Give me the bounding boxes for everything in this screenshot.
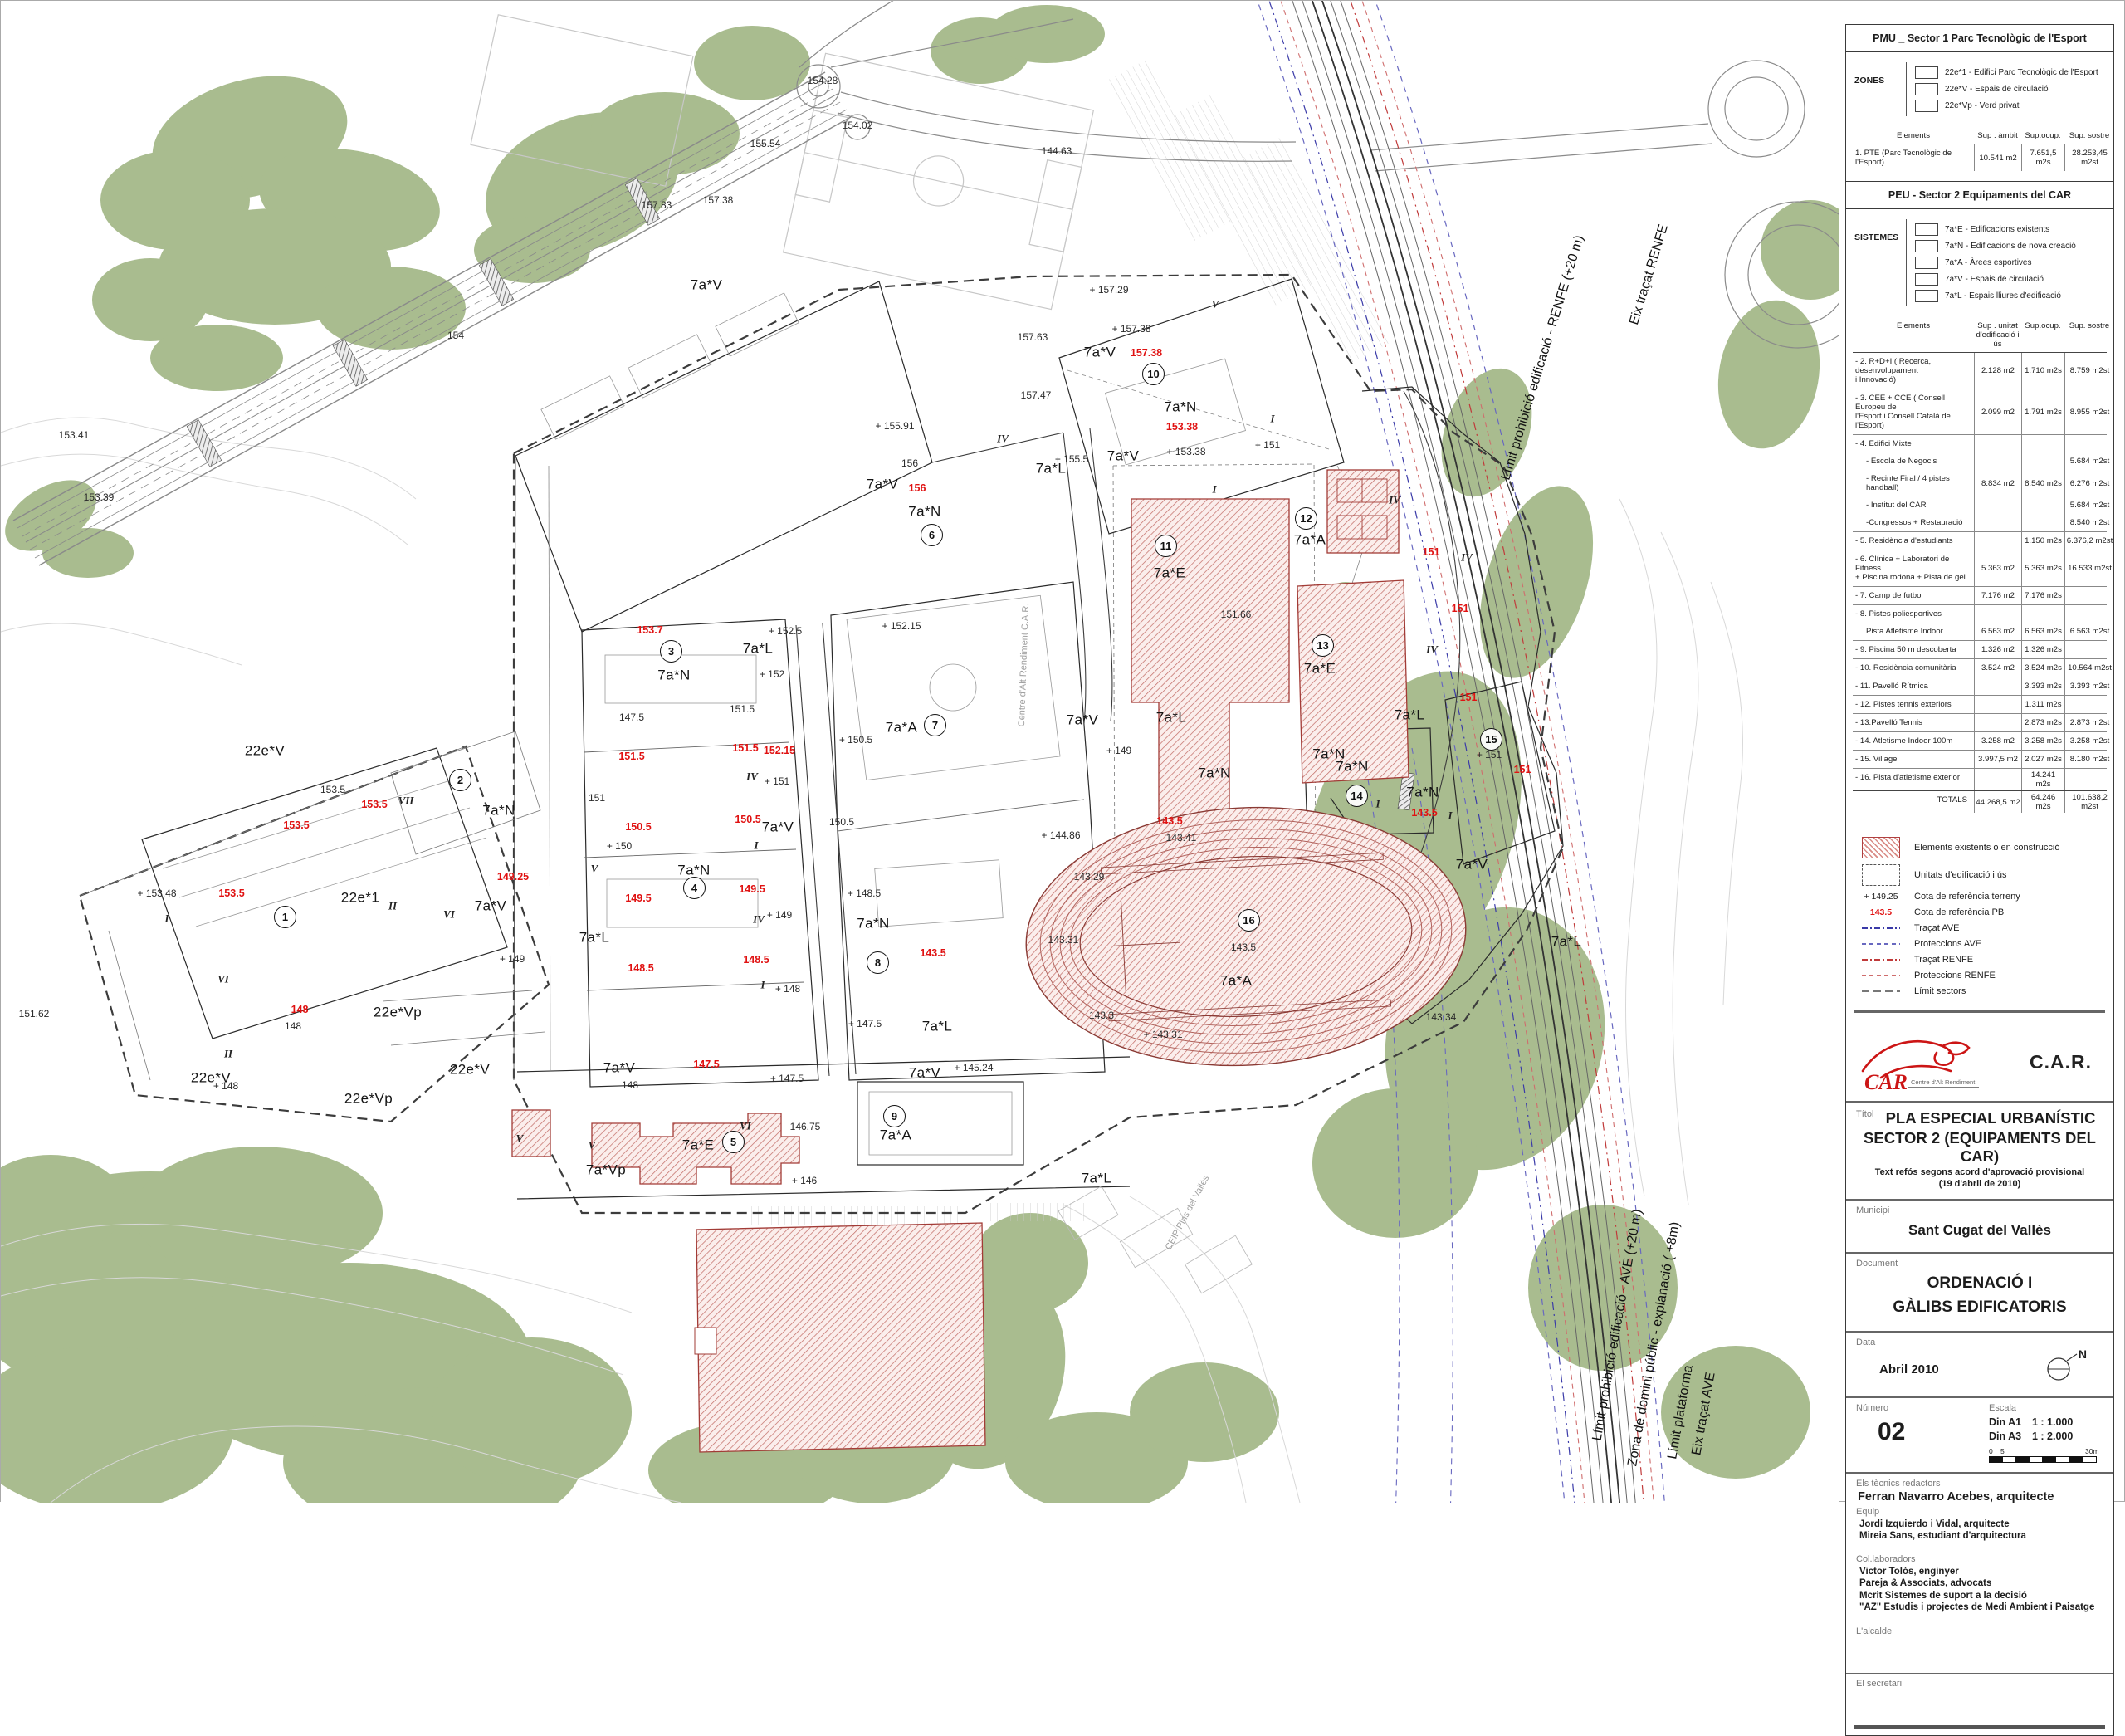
table-row: - 9. Piscina 50 m descoberta1.326 m21.32…: [1853, 640, 2107, 658]
legend-label: Elements existents o en construcció: [1914, 843, 2059, 853]
cota-symbol: 143.5: [1870, 907, 1892, 917]
sistemes-row: 7a*A - Àrees esportives: [1915, 257, 2107, 269]
cell-sup-ocup: 3.393 m2s: [2021, 677, 2064, 695]
map-drawing: [1, 1, 1839, 1503]
titol-label: Títol: [1856, 1109, 1873, 1119]
cell-sup-sostre: [2064, 769, 2114, 790]
legend-label: Cota de referència terreny: [1914, 892, 2020, 902]
cell-sup-ocup: 1.710 m2s: [2021, 353, 2064, 389]
cell-label: - 13.Pavelló Tennis: [1853, 714, 1974, 731]
cell-sup-sostre: 5.684 m2st: [2064, 452, 2114, 470]
cell-sup-unitat: 2.128 m2: [1974, 353, 2021, 389]
zone-text: 7a*N - Edificacions de nova creació: [1945, 242, 2076, 251]
equip-member: Mireia Sans, estudiant d'arquitectura: [1859, 1531, 2103, 1541]
zones-row: 22e*V - Espais de circulació: [1915, 83, 2107, 95]
escala-format: Din A1: [1989, 1416, 2032, 1428]
cell-sup-unitat: 3.258 m2: [1974, 732, 2021, 750]
equip-list: Jordi Izquierdo i Vidal, arquitecteMirei…: [1856, 1519, 2103, 1542]
legend-label: Traçat AVE: [1914, 923, 1959, 933]
cell-label: - 11. Pavelló Rítmica: [1853, 677, 1974, 695]
legend-label: Traçat RENFE: [1914, 955, 1973, 965]
table-header: ElementsSup . àmbitSup.ocup.Sup. sostre: [1853, 128, 2107, 144]
cell-label: - 12. Pistes tennis exteriors: [1853, 696, 1974, 713]
zone-swatch: [1915, 100, 1938, 112]
zone-text: 22e*Vp - Verd privat: [1945, 101, 2020, 110]
cell-sup-sostre: [2064, 641, 2114, 658]
table-row: - 7. Camp de futbol7.176 m27.176 m2s: [1853, 586, 2107, 604]
legend-symbol: [1858, 927, 1904, 929]
document-line2: GÀLIBS EDIFICATORIS: [1856, 1298, 2103, 1317]
cell-sup-unitat: 3.524 m2: [1974, 659, 2021, 677]
table-header-cell: Sup. sostre: [2064, 318, 2114, 352]
zone-text: 22e*V - Espais de circulació: [1945, 85, 2049, 94]
cell-sup-ocup: 7.651,5 m2s: [2021, 144, 2064, 171]
collaborators-list: Victor Tolós, enginyerPareja & Associats…: [1856, 1567, 2103, 1613]
table-row: - 8. Pistes poliesportives: [1853, 604, 2107, 623]
cell-sup-unitat: [1974, 714, 2021, 731]
cell-label: - 2. R+D+I ( Recerca, desenvolupament i …: [1853, 353, 1974, 389]
table-row: - 14. Atletisme Indoor 100m3.258 m23.258…: [1853, 731, 2107, 750]
cell-sup-sostre: 10.564 m2st: [2064, 659, 2114, 677]
totals-label: TOTALS: [1853, 791, 1974, 813]
collaborator: Mcrit Sistemes de suport a la decisió: [1859, 1591, 2103, 1601]
legend-symbol: [1858, 837, 1904, 858]
legend-symbol: 143.5: [1858, 907, 1904, 917]
totals-sup-ocup: 64.246 m2s: [2021, 791, 2064, 813]
cell-sup-ocup: 3.524 m2s: [2021, 659, 2064, 677]
legend-item: 143.5Cota de referència PB: [1858, 907, 2105, 917]
hatch-swatch: [1862, 837, 1900, 858]
cell-label: -Congressos + Restauració: [1853, 514, 1974, 531]
cell-sup-sostre: [2064, 605, 2114, 623]
municipi-section: Municipi Sant Cugat del Vallès: [1846, 1199, 2113, 1252]
cell-sup-unitat: 8.834 m2: [1974, 470, 2021, 496]
peu-sector2-box: PEU - Sector 2 Equipaments del CAR SISTE…: [1845, 182, 2114, 1736]
cell-sup-sostre: 6.376,2 m2st: [2064, 532, 2114, 550]
cell-label: - 10. Residència comunitària: [1853, 659, 1974, 677]
pmu-elements-table: ElementsSup . àmbitSup.ocup.Sup. sostre1…: [1853, 128, 2107, 171]
legend-panel: PMU _ Sector 1 Parc Tecnològic de l'Espo…: [1845, 24, 2114, 1736]
cell-sup-unitat: [1974, 769, 2021, 790]
legend-item: Elements existents o en construcció: [1858, 837, 2105, 858]
legend-item: Límit sectors: [1858, 986, 2105, 996]
cell-sup-ocup: [2021, 496, 2064, 514]
line-swatch: [1862, 975, 1900, 976]
building-12: [1327, 470, 1399, 553]
cell-sup-ocup: 14.241 m2s: [2021, 769, 2064, 790]
cell-sup-sostre: 8.540 m2st: [2064, 514, 2114, 531]
cell-label: - 14. Atletisme Indoor 100m: [1853, 732, 1974, 750]
document-label: Document: [1856, 1259, 2103, 1269]
cell-sup-ocup: 1.791 m2s: [2021, 389, 2064, 434]
numero-value: 02: [1878, 1418, 1905, 1446]
cell-sup-unitat: [1974, 496, 2021, 514]
municipi-value: Sant Cugat del Vallès: [1856, 1222, 2103, 1239]
cell-sup-sostre: [2064, 696, 2114, 713]
svg-text:CAR: CAR: [1864, 1070, 1908, 1094]
alcalde-label: L'alcalde: [1856, 1626, 2103, 1636]
cell-sup-ocup: [2021, 514, 2064, 531]
totals-sup-sostre: 101.638,2 m2st: [2064, 791, 2114, 813]
cell-sup-unitat: [1974, 605, 2021, 623]
table-row: - 5. Residència d'estudiants1.150 m2s6.3…: [1853, 531, 2107, 550]
titol-section: Títol PLA ESPECIAL URBANÍSTIC SECTOR 2 (…: [1846, 1101, 2113, 1199]
cell-label: - 16. Pista d'atletisme exterior: [1853, 769, 1974, 790]
table-row: - Recinte Firal / 4 pistes handball)8.83…: [1853, 470, 2107, 496]
table-row: 1. PTE (Parc Tecnològic de l'Esport)10.5…: [1853, 144, 2107, 171]
escala-row: Din A31 : 2.000: [1989, 1430, 2098, 1442]
scale-bar-label: 5: [2000, 1447, 2005, 1455]
table-header-cell: Sup . àmbit: [1974, 128, 2021, 144]
numero-escala-section: Número 02 Escala Din A11 : 1.000Din A31 …: [1846, 1396, 2113, 1472]
data-label: Data: [1856, 1337, 2103, 1347]
cell-label: - 9. Piscina 50 m descoberta: [1853, 641, 1974, 658]
car-sub-inline: Centre d'Alt Rendiment: [1911, 1078, 1976, 1086]
cell-sup-unitat: 2.099 m2: [1974, 389, 2021, 434]
collaborator: Victor Tolós, enginyer: [1859, 1567, 2103, 1577]
cell-sup-ocup: 2.027 m2s: [2021, 751, 2064, 768]
zone-swatch: [1915, 223, 1938, 236]
zone-swatch: [1915, 290, 1938, 302]
cell-sup-sostre: 6.276 m2st: [2064, 470, 2114, 496]
cell-label: - Institut del CAR: [1853, 496, 1974, 514]
cell-label: - Escola de Negocis: [1853, 452, 1974, 470]
zone-text: 7a*V - Espais de circulació: [1945, 275, 2044, 284]
cell-sup-ocup: 5.363 m2s: [2021, 550, 2064, 586]
zones-row: 22e*Vp - Verd privat: [1915, 100, 2107, 112]
pmu-title: PMU _ Sector 1 Parc Tecnològic de l'Espo…: [1846, 25, 2113, 52]
cell-sup-unitat: [1974, 514, 2021, 531]
legend-symbol: [1858, 943, 1904, 945]
map-canvas: 22e*V22e*122e*Vp22e*V22e*Vp22e*V7a*Vp7a*…: [1, 1, 1839, 1503]
north-arrow: N: [2040, 1347, 2087, 1388]
sistemes-row: 7a*N - Edificacions de nova creació: [1915, 240, 2107, 252]
symbol-legend: Elements existents o en construccióUnita…: [1846, 823, 2113, 1007]
data-section: Data Abril 2010 N: [1846, 1331, 2113, 1396]
building-indoor-hall: [696, 1223, 985, 1452]
cell-sup-sostre: 5.684 m2st: [2064, 496, 2114, 514]
cell-sup-unitat: 1.326 m2: [1974, 641, 2021, 658]
zone-text: 7a*L - Espais lliures d'edificació: [1945, 291, 2061, 301]
table-row: - 3. CEE + CCE ( Consell Europeu de l'Es…: [1853, 389, 2107, 434]
sistemes-row: 7a*E - Edificacions existents: [1915, 223, 2107, 236]
cell-sup-ocup: 6.563 m2s: [2021, 623, 2064, 640]
legend-symbol: [1858, 864, 1904, 886]
pmu-sector1-box: PMU _ Sector 1 Parc Tecnològic de l'Espo…: [1845, 24, 2114, 182]
cell-label: - 4. Edifici Mixte: [1853, 435, 1974, 452]
table-row: - 4. Edifici Mixte: [1853, 434, 2107, 452]
legend-label: Proteccions AVE: [1914, 939, 1981, 949]
table-header-cell: Sup.ocup.: [2021, 128, 2064, 144]
cell-sup-sostre: 3.393 m2st: [2064, 677, 2114, 695]
cell-sup-ocup: 3.258 m2s: [2021, 732, 2064, 750]
escala-label: Escala: [1989, 1403, 2098, 1413]
escala-format: Din A3: [1989, 1430, 2032, 1442]
titol-line3: Text refós segons acord d'aprovació prov…: [1856, 1167, 2103, 1177]
table-row: - 11. Pavelló Rítmica3.393 m2s3.393 m2st: [1853, 677, 2107, 695]
legend-item: + 149.25Cota de referència terreny: [1858, 892, 2105, 902]
cell-sup-ocup: 2.873 m2s: [2021, 714, 2064, 731]
legend-item: Traçat AVE: [1858, 923, 2105, 933]
escala-ratio: 1 : 2.000: [2032, 1430, 2073, 1442]
car-logo: CAR Centre d'Alt Rendiment: [1856, 1029, 1981, 1094]
cell-sup-unitat: [1974, 532, 2021, 550]
legend-label: Cota de referència PB: [1914, 907, 2004, 917]
legend-item: Proteccions RENFE: [1858, 971, 2105, 980]
cell-sup-ocup: 7.176 m2s: [2021, 587, 2064, 604]
legend-symbol: [1858, 990, 1904, 993]
cell-sup-sostre: 8.759 m2st: [2064, 353, 2114, 389]
sistemes-row: 7a*L - Espais lliures d'edificació: [1915, 290, 2107, 302]
escala-row: Din A11 : 1.000: [1989, 1416, 2098, 1428]
north-letter: N: [2079, 1347, 2087, 1361]
divider: [1854, 1010, 2105, 1013]
cell-sup-unitat: [1974, 435, 2021, 452]
zone-swatch: [1915, 66, 1938, 79]
scale-bar: 0530m: [1989, 1449, 2098, 1464]
alcalde-section: L'alcalde: [1846, 1621, 2113, 1673]
zones-row: 22e*1 - Edifici Parc Tecnològic de l'Esp…: [1915, 66, 2107, 79]
cell-sup-unitat: 5.363 m2: [1974, 550, 2021, 586]
cell-label: - 3. CEE + CCE ( Consell Europeu de l'Es…: [1853, 389, 1974, 434]
cell-sup-sostre: 16.533 m2st: [2064, 550, 2114, 586]
cell-label: - 6. Clínica + Laboratori de Fitness + P…: [1853, 550, 1974, 586]
line-swatch: [1862, 927, 1900, 929]
cell-sup-sostre: 6.563 m2st: [2064, 623, 2114, 640]
titol-line2: SECTOR 2 (EQUIPAMENTS DEL CAR): [1856, 1129, 2103, 1166]
table-totals-row: TOTALS44.268,5 m264.246 m2s101.638,2 m2s…: [1853, 790, 2107, 813]
table-row: - Institut del CAR5.684 m2st: [1853, 496, 2107, 514]
cell-sup-sostre: [2064, 435, 2114, 452]
totals-sup-unitat: 44.268,5 m2: [1974, 791, 2021, 813]
table-header-cell: Sup.ocup.: [2021, 318, 2064, 352]
plan-sheet: 22e*V22e*122e*Vp22e*V22e*Vp22e*V7a*Vp7a*…: [0, 0, 2125, 1502]
escala-values: Din A11 : 1.000Din A31 : 2.000: [1989, 1416, 2098, 1442]
sistemes-label: SISTEMES: [1854, 219, 1906, 306]
document-section: Document ORDENACIÓ I GÀLIBS EDIFICATORIS: [1846, 1252, 2113, 1331]
table-row: -Congressos + Restauració8.540 m2st: [1853, 514, 2107, 531]
cell-label: - 7. Camp de futbol: [1853, 587, 1974, 604]
cell-sup-ocup: [2021, 605, 2064, 623]
table-header-cell: Sup . unitat d'edificació i ús: [1974, 318, 2021, 352]
zone-swatch: [1915, 83, 1938, 95]
scale-bar-label: 0: [1989, 1447, 1993, 1455]
table-row: - 13.Pavelló Tennis2.873 m2s2.873 m2st: [1853, 713, 2107, 731]
table-header: ElementsSup . unitat d'edificació i úsSu…: [1853, 318, 2107, 353]
cell-sup-ocup: 1.311 m2s: [2021, 696, 2064, 713]
line-swatch: [1862, 990, 1900, 993]
cota-symbol: + 149.25: [1864, 892, 1898, 902]
cell-label: - Recinte Firal / 4 pistes handball): [1853, 470, 1974, 496]
cell-label: 1. PTE (Parc Tecnològic de l'Esport): [1853, 144, 1974, 171]
table-row: - 16. Pista d'atletisme exterior14.241 m…: [1853, 768, 2107, 790]
table-row: - Escola de Negocis5.684 m2st: [1853, 452, 2107, 470]
cell-sup-unitat: [1974, 452, 2021, 470]
table-header-cell: Elements: [1853, 318, 1974, 352]
cell-sup-sostre: 3.258 m2st: [2064, 732, 2114, 750]
table-row: Pista Atletisme Indoor6.563 m26.563 m2s6…: [1853, 623, 2107, 640]
peu-elements-table: ElementsSup . unitat d'edificació i úsSu…: [1853, 318, 2107, 813]
collaborator: "AZ" Estudis i projectes de Medi Ambient…: [1859, 1602, 2103, 1612]
car-acronym: C.A.R.: [2030, 1051, 2092, 1073]
scale-bar-label: 30m: [2085, 1447, 2099, 1455]
legend-symbol: [1858, 975, 1904, 976]
cell-label: - 5. Residència d'estudiants: [1853, 532, 1974, 550]
cell-sup-ocup: [2021, 452, 2064, 470]
cell-sup-sostre: [2064, 587, 2114, 604]
collaborator: Pareja & Associats, advocats: [1859, 1578, 2103, 1588]
cell-sup-ocup: [2021, 435, 2064, 452]
zone-text: 22e*1 - Edifici Parc Tecnològic de l'Esp…: [1945, 68, 2098, 77]
document-line1: ORDENACIÓ I: [1856, 1274, 2103, 1293]
cell-sup-sostre: 8.180 m2st: [2064, 751, 2114, 768]
data-value: Abril 2010: [1879, 1362, 1939, 1377]
legend-symbol: [1858, 959, 1904, 961]
cell-sup-ocup: 8.540 m2s: [2021, 470, 2064, 496]
table-row: - 2. R+D+I ( Recerca, desenvolupament i …: [1853, 353, 2107, 389]
cell-sup-sostre: 2.873 m2st: [2064, 714, 2114, 731]
cell-sup-unitat: 10.541 m2: [1974, 144, 2021, 171]
titol-line1: PLA ESPECIAL URBANÍSTIC: [1856, 1109, 2103, 1127]
line-swatch: [1862, 943, 1900, 945]
zone-swatch: [1915, 240, 1938, 252]
zone-text: 7a*E - Edificacions existents: [1945, 225, 2049, 234]
table-row: - 10. Residència comunitària3.524 m23.52…: [1853, 658, 2107, 677]
zone-text: 7a*A - Àrees esportives: [1945, 258, 2032, 267]
peu-title: PEU - Sector 2 Equipaments del CAR: [1846, 182, 2113, 209]
cell-sup-ocup: 1.326 m2s: [2021, 641, 2064, 658]
equip-label: Equip: [1856, 1507, 2103, 1517]
escala-ratio: 1 : 1.000: [2032, 1416, 2073, 1428]
legend-label: Límit sectors: [1914, 986, 1966, 996]
sistemes-row: 7a*V - Espais de circulació: [1915, 273, 2107, 286]
titol-line4: (19 d'abril de 2010): [1856, 1179, 2103, 1189]
cell-sup-unitat: [1974, 696, 2021, 713]
building-v-small: [512, 1110, 550, 1157]
cell-sup-unitat: 3.997,5 m2: [1974, 751, 2021, 768]
legend-label: Unitats d'edificació i ús: [1914, 870, 2007, 880]
cell-sup-sostre: 8.955 m2st: [2064, 389, 2114, 434]
zones-label: ZONES: [1854, 62, 1906, 116]
scale-bar-segment: [2082, 1456, 2097, 1463]
legend-label: Proteccions RENFE: [1914, 971, 1996, 980]
numero-label: Número: [1856, 1403, 1905, 1413]
bottom-bar: [1854, 1725, 2105, 1729]
table-row: - 12. Pistes tennis exteriors1.311 m2s: [1853, 695, 2107, 713]
dashed-box-swatch: [1862, 864, 1900, 886]
cell-sup-sostre: 28.253,45 m2st: [2064, 144, 2114, 171]
table-header-cell: Elements: [1853, 128, 1974, 144]
secretari-label: El secretari: [1856, 1679, 2103, 1689]
redactors-section: Els tècnics redactors Ferran Navarro Ace…: [1846, 1472, 2113, 1621]
collaborators-label: Col.laboradors: [1856, 1554, 2103, 1564]
cell-sup-unitat: [1974, 677, 2021, 695]
cell-sup-ocup: 1.150 m2s: [2021, 532, 2064, 550]
legend-item: Traçat RENFE: [1858, 955, 2105, 965]
cell-label: - 15. Village: [1853, 751, 1974, 768]
cell-label: Pista Atletisme Indoor: [1853, 623, 1974, 640]
cell-label: - 8. Pistes poliesportives: [1853, 605, 1974, 623]
secretari-section: El secretari: [1846, 1673, 2113, 1725]
zones-list: 22e*1 - Edifici Parc Tecnològic de l'Esp…: [1906, 62, 2107, 116]
cell-sup-unitat: 7.176 m2: [1974, 587, 2021, 604]
legend-symbol: + 149.25: [1858, 892, 1904, 902]
table-row: - 15. Village3.997,5 m22.027 m2s8.180 m2…: [1853, 750, 2107, 768]
zone-swatch: [1915, 257, 1938, 269]
zone-swatch: [1915, 273, 1938, 286]
equip-member: Jordi Izquierdo i Vidal, arquitecte: [1859, 1519, 2103, 1529]
car-logo-row: CAR Centre d'Alt Rendiment C.A.R.: [1846, 1021, 2113, 1101]
municipi-label: Municipi: [1856, 1205, 2103, 1215]
legend-item: Unitats d'edificació i ús: [1858, 864, 2105, 886]
building-13: [1297, 580, 1409, 783]
table-header-cell: Sup. sostre: [2064, 128, 2114, 144]
redactors-label: Els tècnics redactors: [1856, 1479, 2103, 1489]
table-row: - 6. Clínica + Laboratori de Fitness + P…: [1853, 550, 2107, 586]
legend-item: Proteccions AVE: [1858, 939, 2105, 949]
cell-sup-unitat: 6.563 m2: [1974, 623, 2021, 640]
line-swatch: [1862, 959, 1900, 961]
sistemes-list: 7a*E - Edificacions existents7a*N - Edif…: [1906, 219, 2107, 306]
